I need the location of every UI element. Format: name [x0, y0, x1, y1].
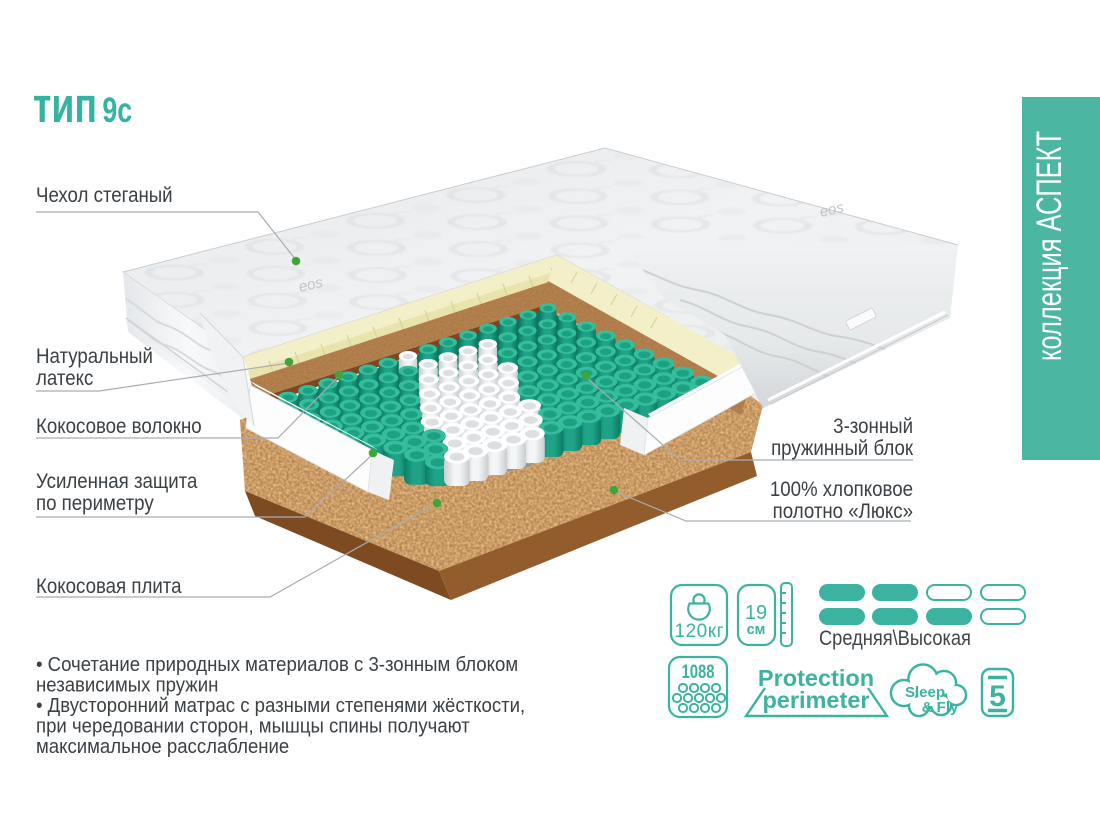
svg-text:Кокосовое волокно: Кокосовое волокно	[36, 415, 202, 438]
svg-text:пружинный блок: пружинный блок	[771, 437, 913, 460]
svg-text:120кг: 120кг	[675, 621, 724, 642]
svg-text:• Двусторонний матрас с разным: • Двусторонний матрас с разными степеням…	[36, 695, 525, 717]
svg-text:по периметру: по периметру	[36, 492, 154, 515]
svg-text:см: см	[747, 622, 766, 638]
svg-text:при чередовании сторон, мышцы: при чередовании сторон, мышцы спины полу…	[36, 716, 470, 738]
svg-text:коллекция АСПЕКТ: коллекция АСПЕКТ	[1030, 131, 1069, 361]
svg-text:Средняя\Высокая: Средняя\Высокая	[819, 627, 971, 650]
svg-text:100% хлопковое: 100% хлопковое	[770, 478, 913, 501]
svg-text:латекс: латекс	[36, 367, 93, 390]
svg-text:3-зонный: 3-зонный	[833, 415, 913, 438]
svg-text:полотно «Люкс»: полотно «Люкс»	[773, 500, 913, 523]
svg-text:независимых пружин: независимых пружин	[36, 675, 218, 697]
svg-text:perimeter: perimeter	[762, 687, 869, 713]
svg-text:1088: 1088	[682, 662, 715, 683]
svg-text:Натуральный: Натуральный	[36, 345, 153, 368]
svg-text:• Сочетание природных материал: • Сочетание природных материалов с 3-зон…	[36, 654, 518, 676]
svg-text:Кокосовая плита: Кокосовая плита	[36, 575, 182, 598]
svg-text:19: 19	[745, 602, 767, 624]
svg-text:Усиленная защита: Усиленная защита	[36, 470, 198, 493]
svg-text:5: 5	[989, 680, 1006, 713]
svg-text:& Fly: & Fly	[922, 699, 959, 716]
svg-text:Чехол стеганый: Чехол стеганый	[36, 184, 173, 207]
svg-text:максимальное расслабление: максимальное расслабление	[36, 736, 289, 758]
